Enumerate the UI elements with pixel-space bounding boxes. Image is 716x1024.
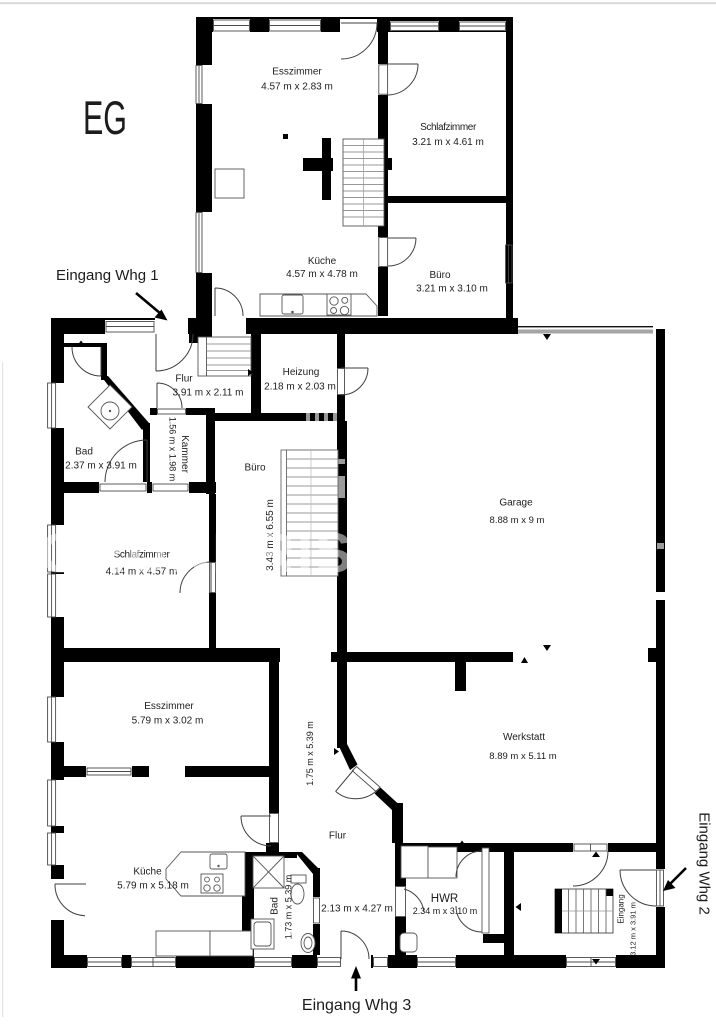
svg-text:Schlafzimmer: Schlafzimmer [420, 122, 477, 133]
svg-text:1.73 m x 5.39 m: 1.73 m x 5.39 m [284, 875, 294, 940]
svg-text:Bad: Bad [270, 897, 281, 915]
svg-text:3.21 m x 3.10 m: 3.21 m x 3.10 m [416, 284, 488, 295]
svg-text:3.21 m x 4.61 m: 3.21 m x 4.61 m [412, 137, 484, 148]
svg-text:Esszimmer: Esszimmer [144, 701, 194, 712]
svg-text:2.13 m x 4.27 m: 2.13 m x 4.27 m [321, 904, 393, 915]
svg-text:Küche: Küche [308, 256, 337, 267]
svg-text:Bad: Bad [75, 447, 93, 458]
svg-text:Eingang Whg 2: Eingang Whg 2 [696, 812, 713, 915]
svg-text:Eingang Whg 3: Eingang Whg 3 [302, 997, 412, 1014]
svg-text:3.12 m x 3.91 m: 3.12 m x 3.91 m [629, 902, 638, 956]
svg-text:Esszimmer: Esszimmer [272, 67, 322, 78]
svg-text:4.57 m x 2.83 m: 4.57 m x 2.83 m [261, 82, 333, 93]
svg-text:3.91 m x 2.11 m: 3.91 m x 2.11 m [173, 388, 244, 399]
svg-text:2.34 m x 3.10 m: 2.34 m x 3.10 m [413, 906, 478, 916]
svg-text:Heizung: Heizung [283, 367, 320, 378]
svg-text:Werkstatt: Werkstatt [503, 732, 545, 743]
svg-text:5.79 m x 5.18 m: 5.79 m x 5.18 m [117, 881, 189, 892]
svg-text:4.57 m x 4.78 m: 4.57 m x 4.78 m [286, 269, 358, 280]
svg-text:Garage: Garage [499, 498, 533, 509]
svg-text:EG: EG [83, 91, 127, 144]
svg-text:Küche: Küche [133, 867, 162, 878]
svg-text:2.18 m x 2.03 m: 2.18 m x 2.03 m [264, 382, 336, 393]
svg-text:Büro: Büro [244, 463, 266, 474]
svg-text:1.75 m x 5.39 m: 1.75 m x 5.39 m [305, 721, 315, 786]
svg-text:Flur: Flur [175, 374, 193, 385]
svg-text:8.89 m x 5.11 m: 8.89 m x 5.11 m [489, 751, 556, 762]
svg-text:Kammer: Kammer [179, 435, 190, 473]
svg-text:Eingang Whg 1: Eingang Whg 1 [56, 267, 159, 284]
svg-text:Flur: Flur [329, 831, 347, 842]
svg-text:GRUNDRISSPROFI24: GRUNDRISSPROFI24 [39, 521, 640, 584]
svg-text:Büro: Büro [429, 270, 451, 281]
svg-text:Eingang: Eingang [617, 894, 626, 923]
svg-text:HWR: HWR [431, 893, 458, 905]
svg-text:5.79 m x 3.02 m: 5.79 m x 3.02 m [132, 716, 204, 727]
svg-text:2.37 m x 3.91 m: 2.37 m x 3.91 m [65, 461, 137, 472]
svg-text:1.56 m x 1.98 m: 1.56 m x 1.98 m [168, 417, 178, 482]
